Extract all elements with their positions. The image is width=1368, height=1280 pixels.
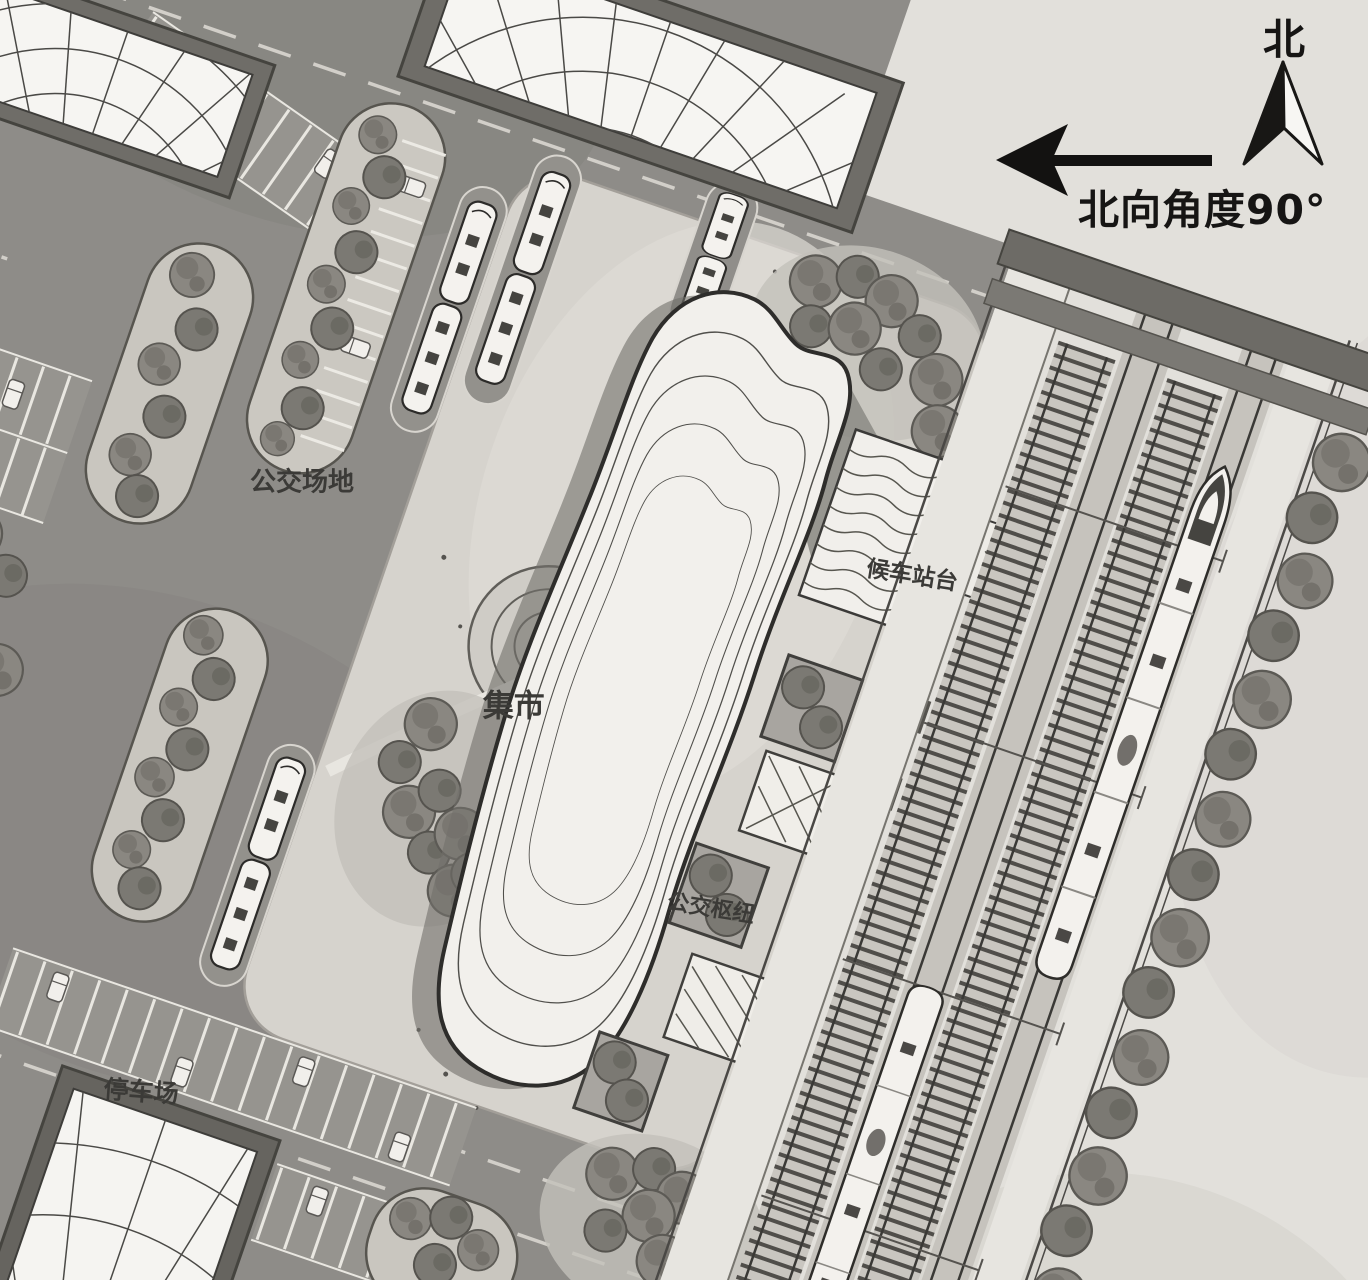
- site-plan-drawing: 公交场地 集市 候车站台 公交枢纽 停车场 北 北向角度90°: [0, 0, 1368, 1280]
- north-label: 北: [1263, 15, 1305, 64]
- plan-canvas: 公交场地 集市 候车站台 公交枢纽 停车场 北 北向角度90°: [0, 0, 1368, 1280]
- label-market: 集市: [482, 689, 545, 725]
- label-bus-area: 公交场地: [250, 467, 354, 498]
- north-angle-label: 北向角度90°: [1078, 186, 1327, 234]
- label-parking-lot: 停车场: [103, 1075, 180, 1109]
